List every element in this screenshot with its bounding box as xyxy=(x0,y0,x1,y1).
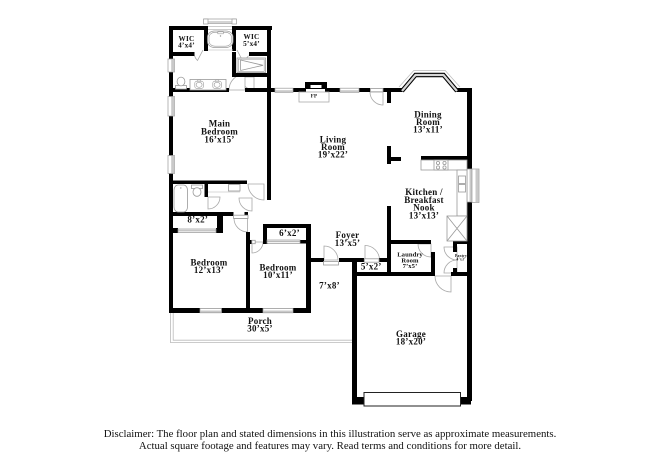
svg-text:4’x4’: 4’x4’ xyxy=(178,42,195,50)
svg-text:30’x5’: 30’x5’ xyxy=(247,323,273,333)
svg-text:6’x2’: 6’x2’ xyxy=(279,228,300,238)
svg-text:5’x4’: 5’x4’ xyxy=(243,40,260,48)
svg-text:8’x2’: 8’x2’ xyxy=(187,215,208,225)
svg-text:12’x13’: 12’x13’ xyxy=(194,265,224,275)
svg-text:Disclaimer: The floor plan and: Disclaimer: The floor plan and stated di… xyxy=(104,428,557,440)
svg-text:7’x5’: 7’x5’ xyxy=(403,263,418,270)
svg-text:16’x15’: 16’x15’ xyxy=(204,134,234,144)
svg-text:13’x5’: 13’x5’ xyxy=(335,238,361,248)
svg-text:7’x8’: 7’x8’ xyxy=(319,281,340,291)
svg-text:13’x11’: 13’x11’ xyxy=(413,125,443,135)
svg-text:4’x3’: 4’x3’ xyxy=(456,258,465,262)
svg-text:13’x13’: 13’x13’ xyxy=(409,211,439,221)
svg-text:10’x11’: 10’x11’ xyxy=(263,270,293,280)
svg-text:18’x20’: 18’x20’ xyxy=(396,337,426,347)
svg-text:19’x22’: 19’x22’ xyxy=(318,150,348,160)
svg-text:5’x2’: 5’x2’ xyxy=(361,262,382,272)
svg-text:FP: FP xyxy=(311,95,318,100)
svg-text:Actual square footage and feat: Actual square footage and features may v… xyxy=(139,440,521,452)
